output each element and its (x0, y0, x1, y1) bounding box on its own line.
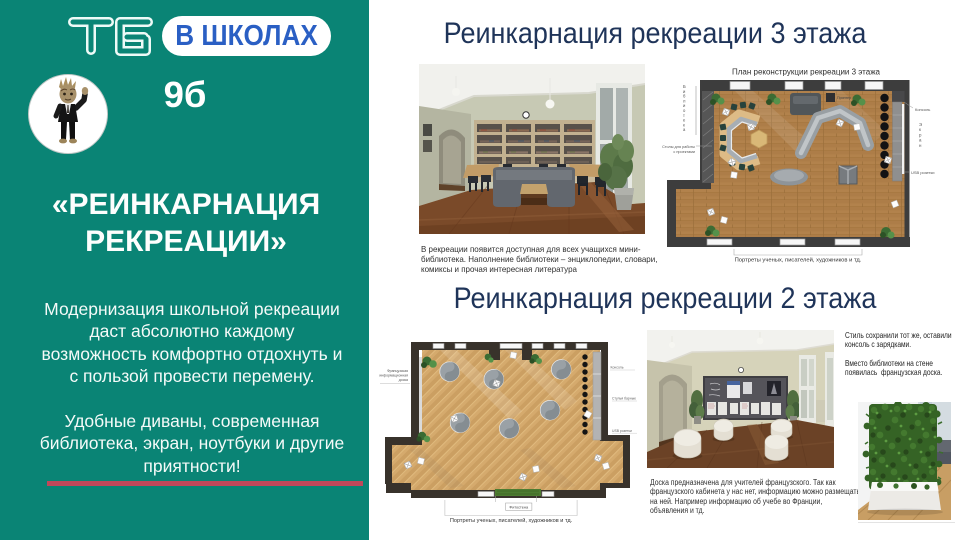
svg-text:Консоль: Консоль (611, 366, 624, 370)
svg-text:Консоль: Консоль (915, 107, 930, 112)
svg-text:Столы для работы: Столы для работы (662, 145, 695, 149)
svg-text:Портреты ученых, писателей, ху: Портреты ученых, писателей, художников и… (450, 517, 573, 524)
svg-text:Стулья барные: Стулья барные (612, 397, 636, 401)
svg-text:с проектами: с проектами (673, 150, 695, 154)
svg-text:План реконструкции рекреации 3: План реконструкции рекреации 3 этажа (732, 67, 881, 76)
svg-text:информационная: информационная (379, 374, 408, 378)
svg-text:USB розетки: USB розетки (911, 170, 934, 175)
svg-text:Портреты ученых, писателей, ху: Портреты ученых, писателей, художников и… (735, 257, 862, 264)
svg-text:доска: доска (399, 378, 408, 382)
svg-text:Библиотека: Библиотека (683, 84, 686, 132)
svg-text:Принтер: Принтер (837, 96, 851, 100)
svg-text:Фитостена: Фитостена (509, 505, 529, 509)
svg-text:Французская: Французская (387, 369, 408, 373)
svg-text:USB розетки: USB розетки (612, 429, 632, 433)
svg-text:Экран: Экран (919, 122, 922, 148)
